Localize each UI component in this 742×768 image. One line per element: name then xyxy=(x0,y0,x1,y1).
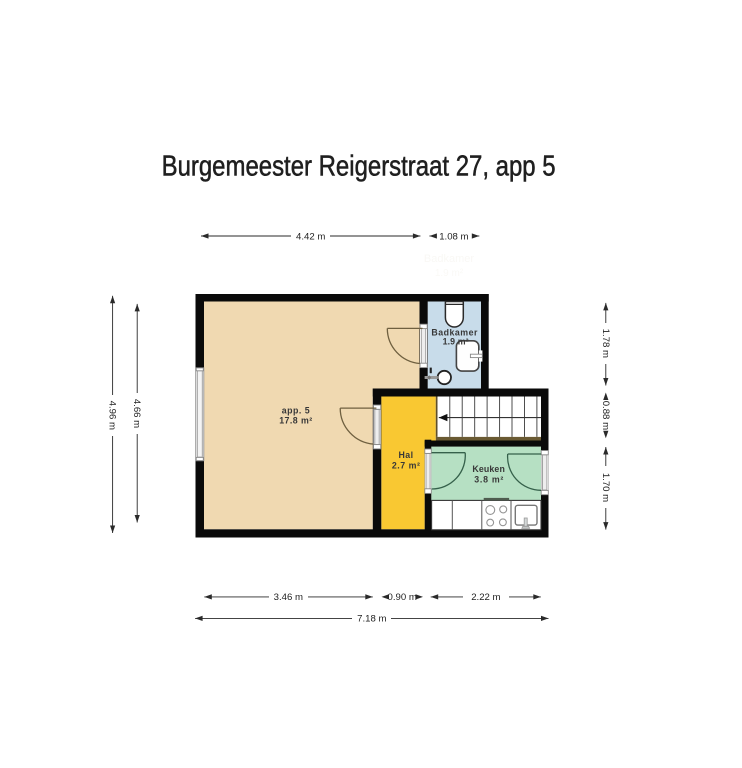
svg-text:app. 5: app. 5 xyxy=(282,405,310,415)
svg-text:3.8 m²: 3.8 m² xyxy=(474,474,503,484)
svg-text:2.7 m²: 2.7 m² xyxy=(392,461,420,471)
svg-text:Badkamer: Badkamer xyxy=(424,253,474,265)
svg-text:1.9 m²: 1.9 m² xyxy=(443,336,469,346)
svg-text:17.8 m²: 17.8 m² xyxy=(279,416,312,426)
svg-text:Hal: Hal xyxy=(399,450,414,460)
svg-text:4.96 m: 4.96 m xyxy=(107,401,118,430)
svg-text:4.66 m: 4.66 m xyxy=(131,399,142,428)
svg-text:1.9 m²: 1.9 m² xyxy=(435,268,464,279)
svg-text:Keuken: Keuken xyxy=(472,464,504,474)
svg-text:2.22 m: 2.22 m xyxy=(471,592,500,603)
svg-text:0.90 m: 0.90 m xyxy=(388,592,417,603)
svg-text:7.18 m: 7.18 m xyxy=(357,614,386,625)
svg-text:1.78 m: 1.78 m xyxy=(600,329,611,358)
svg-text:Burgemeester Reigerstraat 27,: Burgemeester Reigerstraat 27, app 5 xyxy=(162,151,556,183)
svg-text:3.46 m: 3.46 m xyxy=(274,592,303,603)
svg-text:1.08 m: 1.08 m xyxy=(439,231,468,242)
svg-text:4.42 m: 4.42 m xyxy=(296,231,325,242)
svg-text:1.70 m: 1.70 m xyxy=(600,473,611,502)
svg-text:0.88 m: 0.88 m xyxy=(600,401,611,430)
